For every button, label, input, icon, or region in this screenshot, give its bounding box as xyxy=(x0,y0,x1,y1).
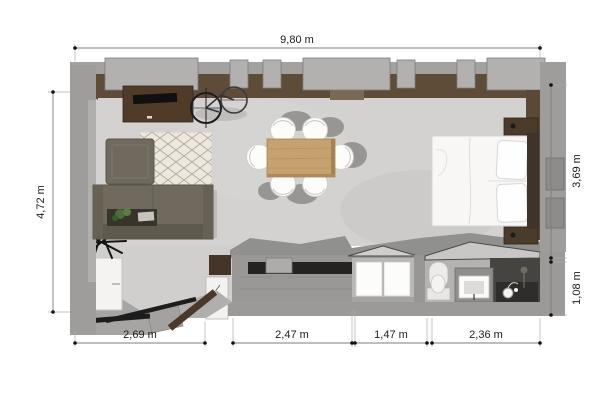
dim-label-right-lower: 1,08 m xyxy=(571,271,583,305)
shower-head-disc xyxy=(503,288,513,298)
floor-plan-canvas: 9,80 m 4,72 m 3,69 m 1,08 m 2,69 m 2,47 … xyxy=(0,0,600,400)
dim-label-left: 4,72 m xyxy=(35,185,47,219)
bathroom-vanity xyxy=(455,268,493,302)
bottom-wall-complex xyxy=(206,233,565,319)
dining-table xyxy=(267,139,335,177)
nightstand-top xyxy=(504,118,538,135)
nightstand-item-bottom xyxy=(511,233,516,238)
bathroom xyxy=(425,242,540,303)
dim-label-bottom-3: 1,47 m xyxy=(374,329,408,341)
top-wall-notch xyxy=(330,90,364,100)
pillow-top xyxy=(496,140,528,180)
dim-label-bottom-4: 2,36 m xyxy=(469,329,503,341)
dim-label-bottom-2: 2,47 m xyxy=(275,329,309,341)
pillow-bottom xyxy=(496,183,527,222)
kitchen-window xyxy=(348,246,418,303)
remote xyxy=(147,116,152,119)
sofa-armrest-right xyxy=(203,185,213,239)
dim-label-top: 9,80 m xyxy=(280,34,314,46)
toilet xyxy=(427,262,450,300)
kitchen-cabinet-dark xyxy=(209,255,231,275)
plant-leaves xyxy=(521,267,528,274)
sofa-armrest-left xyxy=(93,185,103,239)
nightstand-item-top xyxy=(511,124,516,129)
bottom-outer-wall xyxy=(228,302,565,316)
bed-headboard xyxy=(527,133,539,229)
plant-foliage-2 xyxy=(123,208,131,216)
armchair-body xyxy=(106,139,154,184)
toilet-bowl xyxy=(431,275,445,293)
tray-item xyxy=(138,211,155,221)
left-wall xyxy=(70,65,96,335)
sink-basin xyxy=(464,281,484,294)
bed xyxy=(432,133,539,229)
sofa-shadow xyxy=(213,190,217,238)
nightstand-bottom xyxy=(504,227,538,244)
kitchen-sink xyxy=(266,258,292,273)
shower-floor xyxy=(496,282,538,302)
dim-label-right-upper: 3,69 m xyxy=(571,154,583,188)
dim-label-bottom-1: 2,69 m xyxy=(123,329,157,341)
shower-knob xyxy=(514,288,518,292)
floor-plan-rendering: 9,80 m 4,72 m 3,69 m 1,08 m 2,69 m 2,47 … xyxy=(0,0,600,400)
bed-area xyxy=(432,118,539,244)
sofa xyxy=(93,185,217,239)
sofa-backrest xyxy=(93,224,213,239)
tv-console xyxy=(123,86,193,122)
plant-foliage-3 xyxy=(112,215,118,221)
radiator-lower xyxy=(546,198,564,228)
armchair xyxy=(106,139,154,184)
radiator-upper xyxy=(546,158,564,190)
